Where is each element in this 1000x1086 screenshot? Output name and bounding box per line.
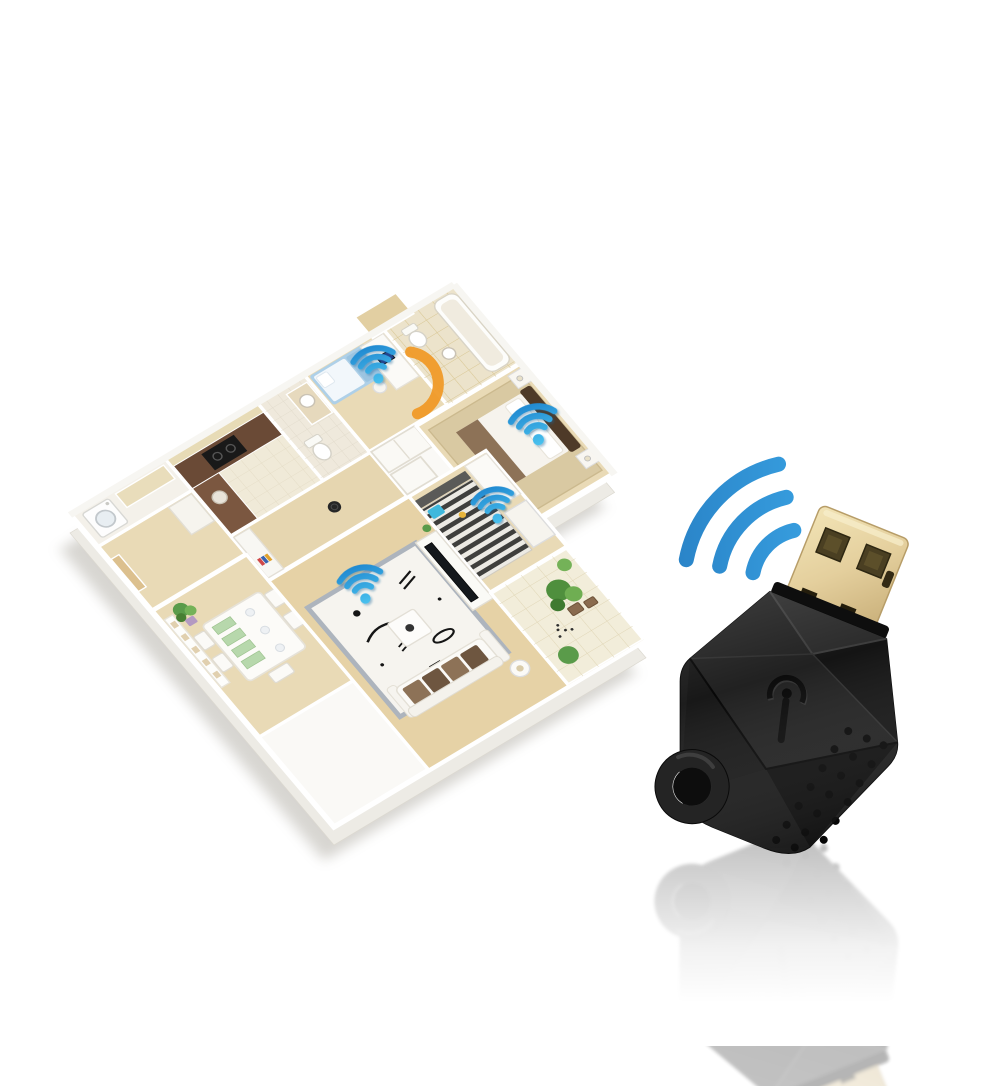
reflection-fade [600,846,1000,1046]
usb-wifi-adapter [629,479,972,886]
wifi-arc [747,524,794,572]
product-image [0,0,1000,1086]
